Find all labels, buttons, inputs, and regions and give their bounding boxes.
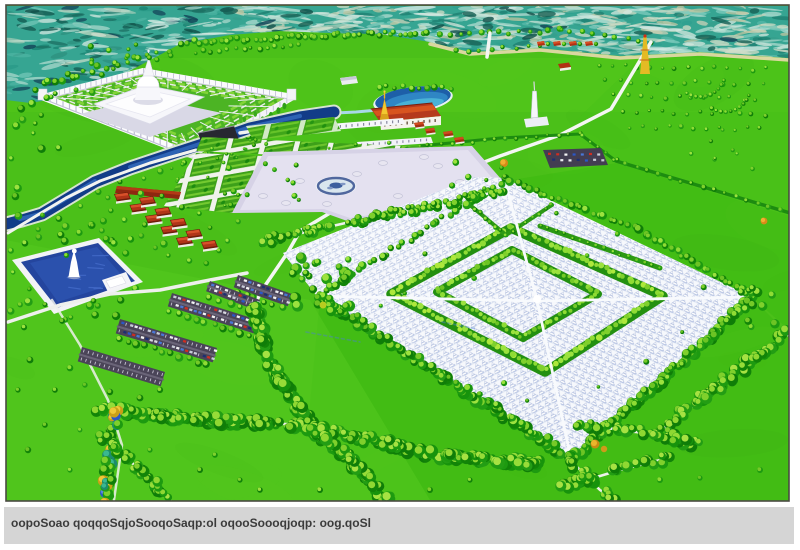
svg-text:oopoSoao qoqqoSqjoSooqoSaqp:ol: oopoSoao qoqqoSqjoSooqoSaqp:ol oqooSoooq… [11,516,371,530]
